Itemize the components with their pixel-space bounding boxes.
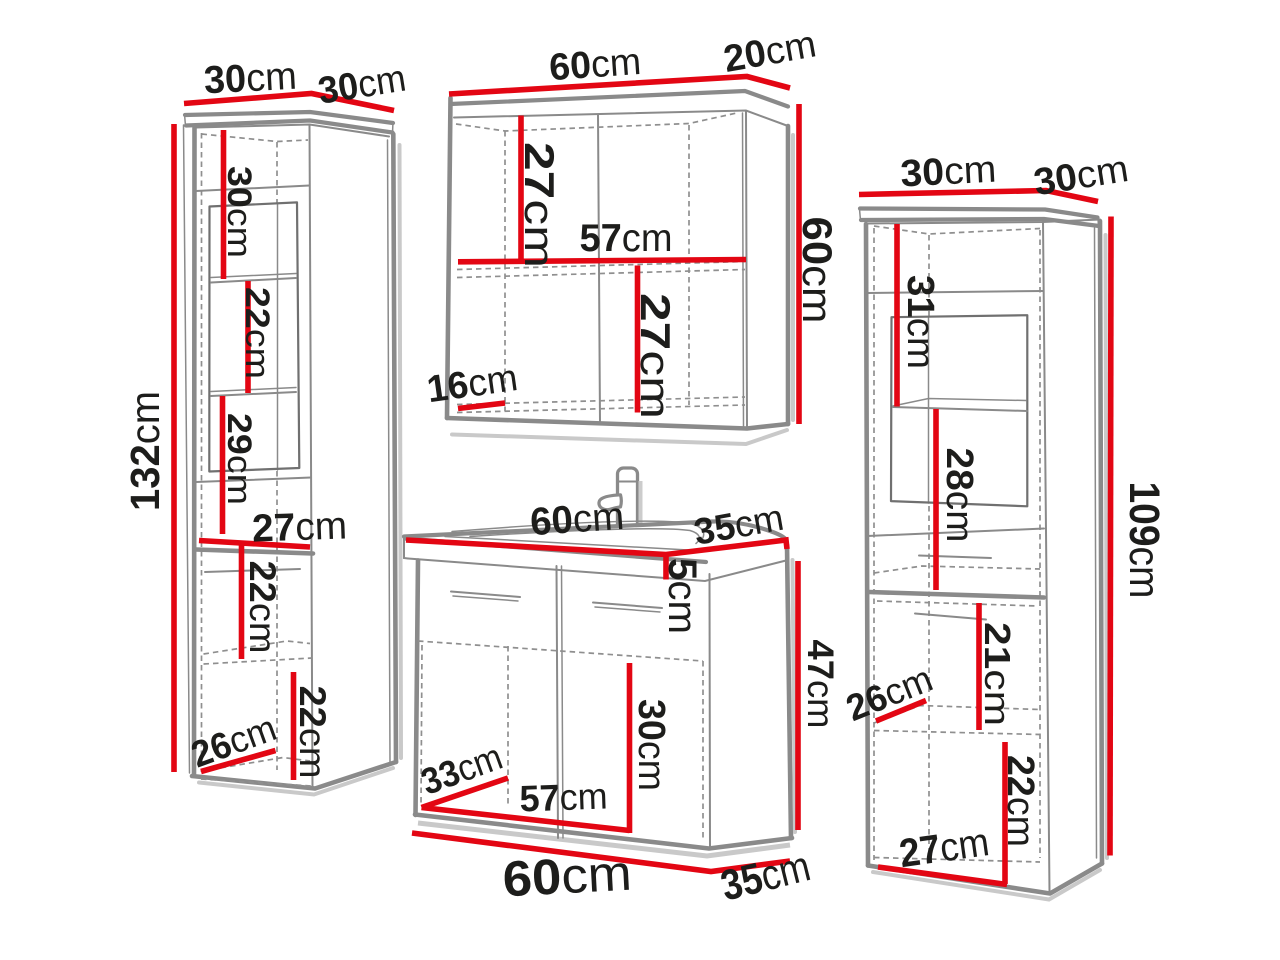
svg-text:22cm: 22cm xyxy=(238,287,276,379)
svg-text:30cm: 30cm xyxy=(220,166,258,258)
svg-text:29cm: 29cm xyxy=(220,413,258,505)
svg-text:27cm: 27cm xyxy=(251,504,347,550)
svg-text:60cm: 60cm xyxy=(501,845,633,908)
svg-text:60cm: 60cm xyxy=(529,495,626,544)
svg-text:31cm: 31cm xyxy=(899,275,941,369)
svg-text:22cm: 22cm xyxy=(999,755,1041,847)
svg-text:60cm: 60cm xyxy=(794,217,841,324)
svg-text:22cm: 22cm xyxy=(242,561,283,654)
svg-text:27cm: 27cm xyxy=(632,293,679,419)
svg-text:132cm: 132cm xyxy=(122,391,168,511)
svg-text:30cm: 30cm xyxy=(203,55,298,103)
svg-text:60cm: 60cm xyxy=(548,41,643,89)
svg-text:30cm: 30cm xyxy=(630,699,672,791)
svg-text:5cm: 5cm xyxy=(660,558,704,634)
svg-text:21cm: 21cm xyxy=(977,622,1018,726)
svg-text:47cm: 47cm xyxy=(800,640,841,729)
svg-text:109cm: 109cm xyxy=(1120,482,1168,599)
svg-text:28cm: 28cm xyxy=(938,448,980,543)
svg-text:27cm: 27cm xyxy=(516,142,563,268)
svg-text:22cm: 22cm xyxy=(292,686,333,779)
svg-text:57cm: 57cm xyxy=(580,217,673,260)
svg-text:30cm: 30cm xyxy=(899,149,997,196)
svg-text:57cm: 57cm xyxy=(519,775,608,819)
